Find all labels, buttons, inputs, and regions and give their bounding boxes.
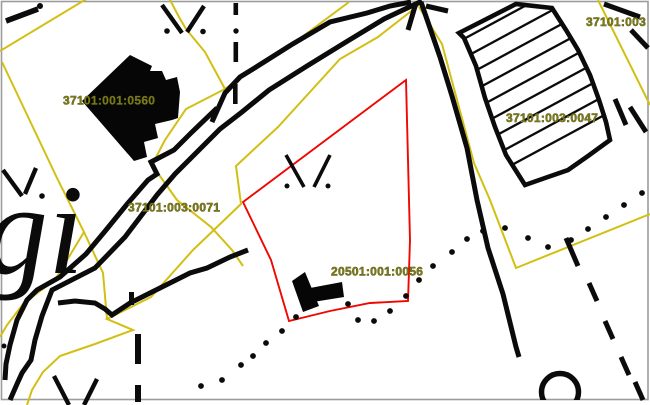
svg-text:37101:001:0560: 37101:001:0560 (63, 94, 155, 108)
svg-text:gi: gi (0, 159, 84, 301)
svg-text:20501:001:0056: 20501:001:0056 (331, 265, 423, 279)
svg-text:37101:003:0071: 37101:003:0071 (128, 201, 220, 215)
svg-text:37101:003:0047: 37101:003:0047 (506, 111, 598, 125)
svg-text:37101:003: 37101:003 (586, 15, 646, 29)
